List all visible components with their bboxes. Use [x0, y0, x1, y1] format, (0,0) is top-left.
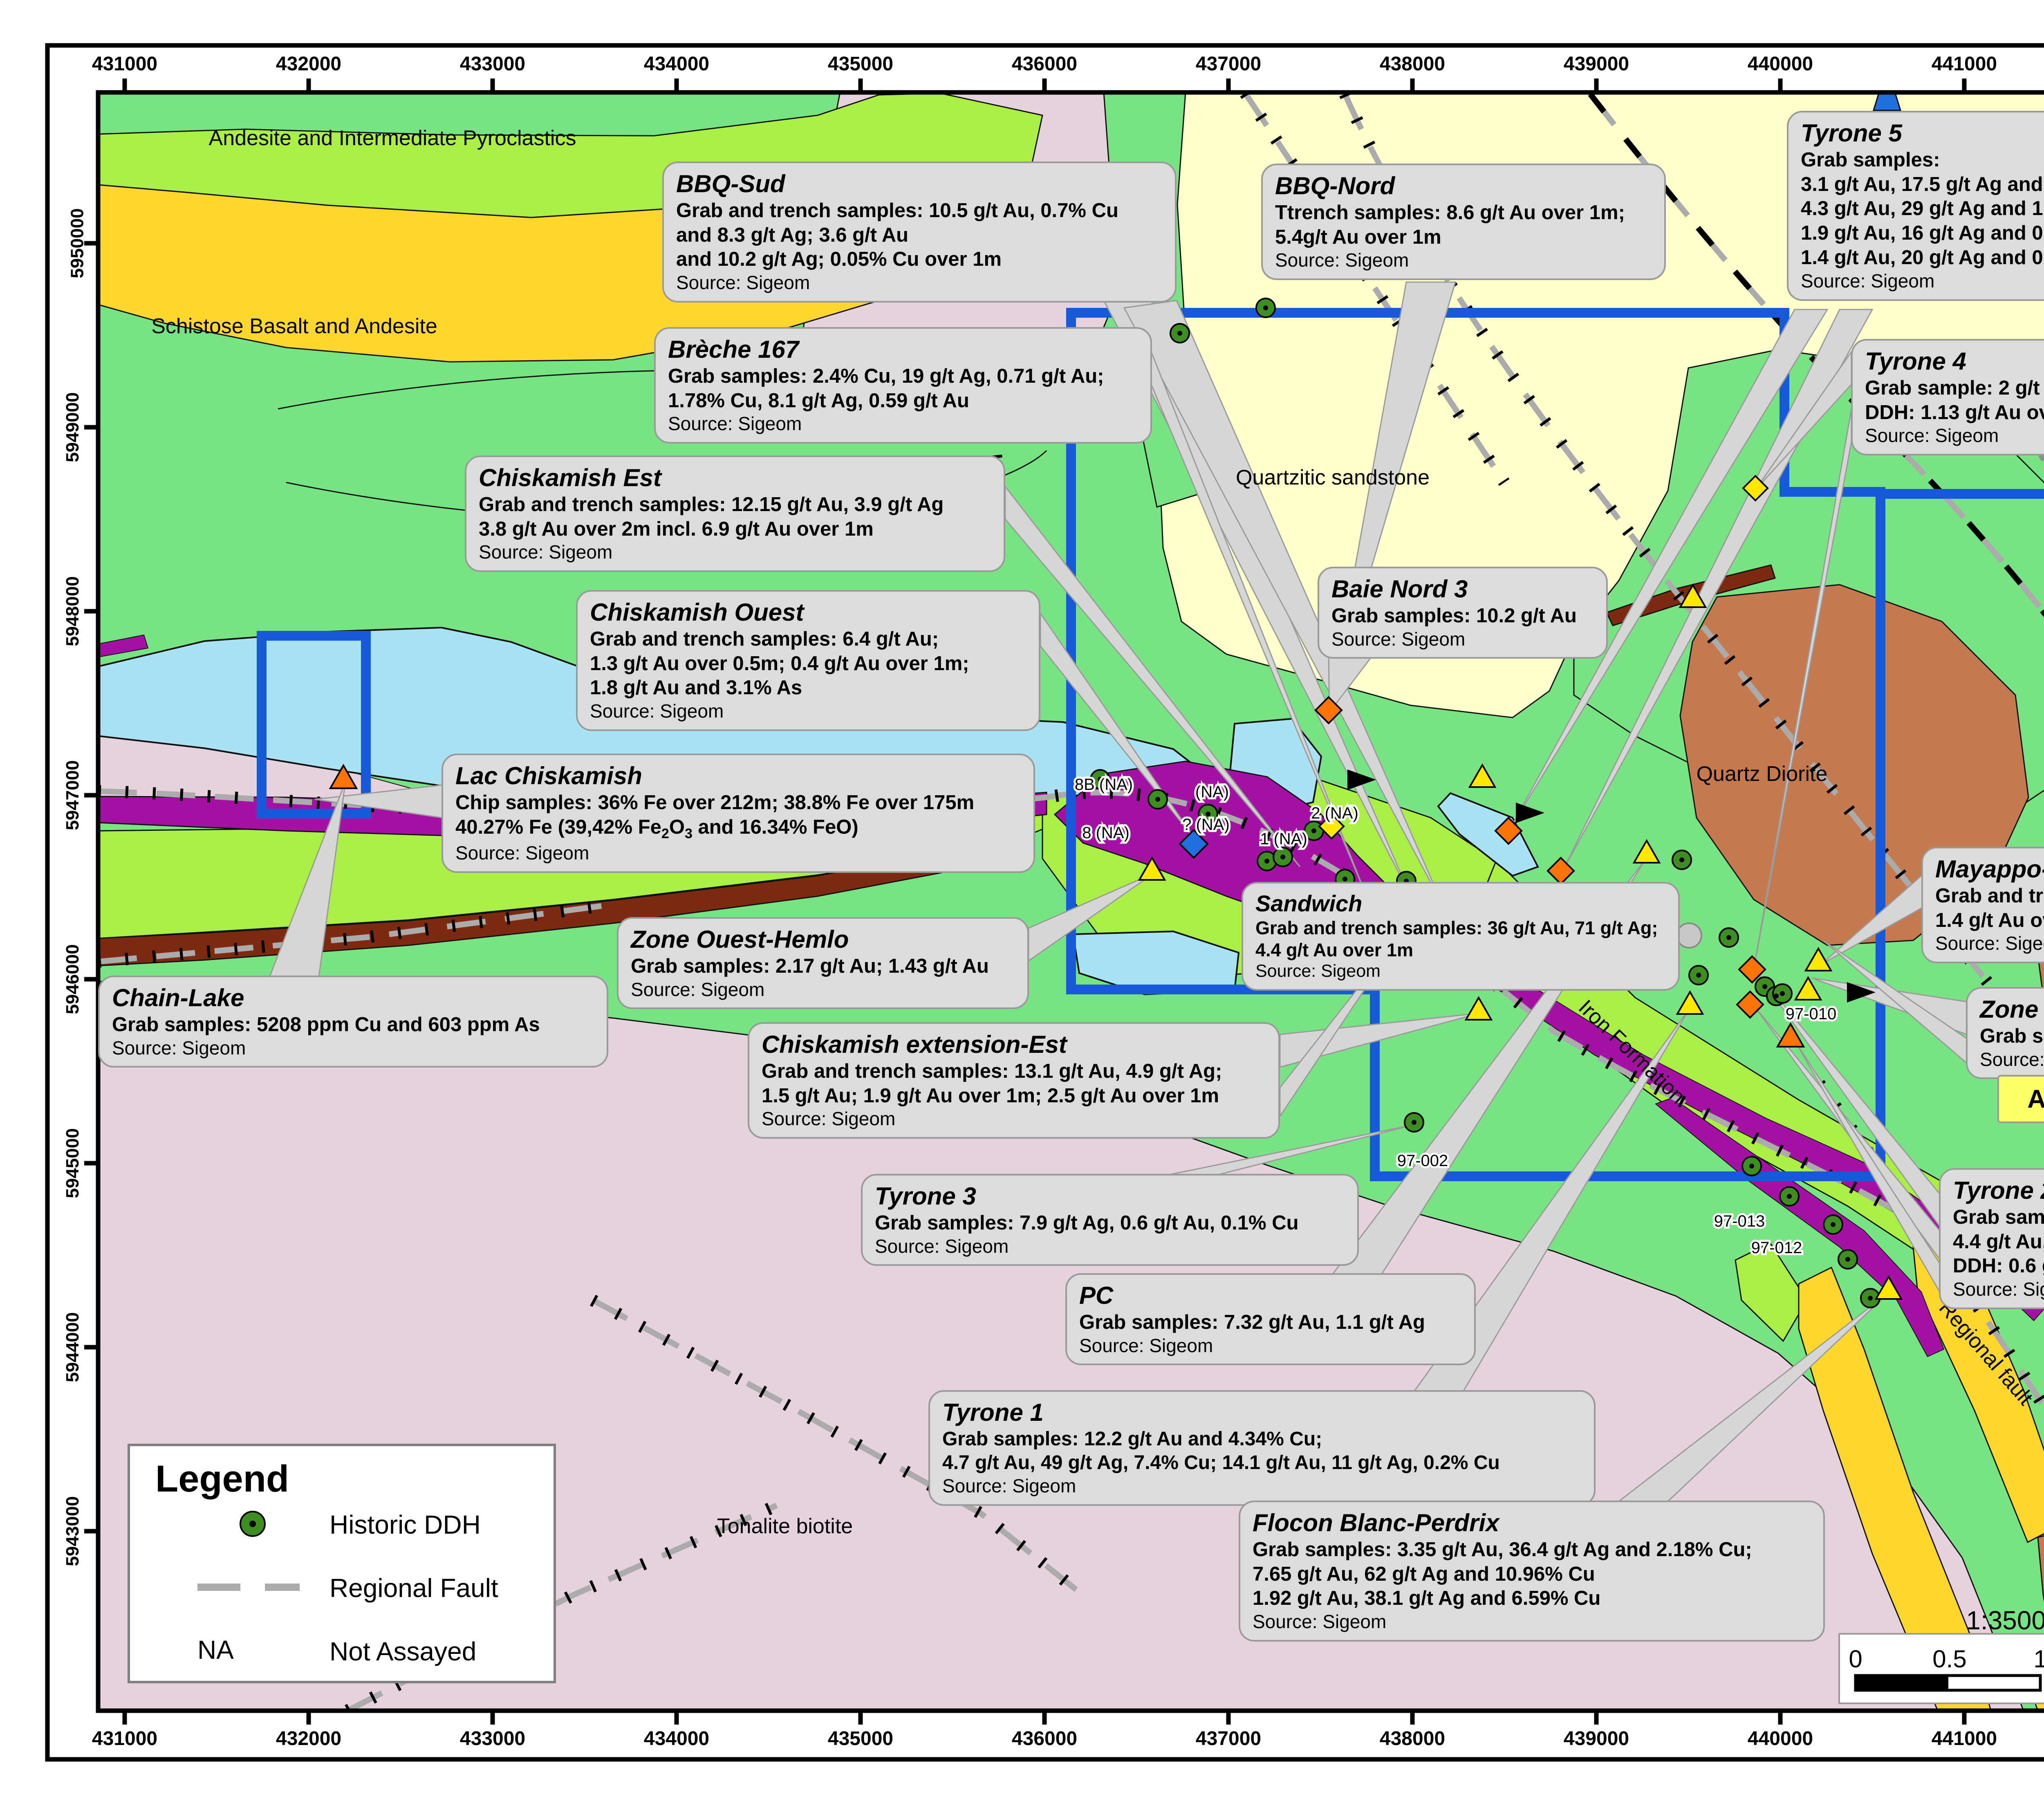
svg-text:434000: 434000	[644, 1728, 709, 1750]
svg-text:NA: NA	[197, 1635, 234, 1664]
svg-text:437000: 437000	[1196, 53, 1261, 75]
svg-text:433000: 433000	[460, 53, 525, 75]
svg-text:5945000: 5945000	[63, 1128, 83, 1198]
svg-text:5947000: 5947000	[63, 760, 83, 830]
svg-text:Tonalite biotite: Tonalite biotite	[717, 1514, 853, 1538]
svg-text:5950000: 5950000	[67, 208, 87, 278]
svg-text:Schistose Basalt and Andesite: Schistose Basalt and Andesite	[151, 314, 437, 338]
svg-text:441000: 441000	[1932, 53, 1997, 75]
svg-text:434000: 434000	[644, 53, 709, 75]
svg-text:5949000: 5949000	[63, 392, 83, 462]
svg-text:440000: 440000	[1748, 1728, 1813, 1750]
svg-text:0: 0	[1849, 1645, 1862, 1673]
svg-text:8B (NA): 8B (NA)	[1075, 776, 1133, 794]
svg-text:432000: 432000	[276, 1728, 341, 1750]
svg-text:? (NA): ? (NA)	[1182, 816, 1230, 834]
svg-text:439000: 439000	[1564, 1728, 1629, 1750]
svg-text:97-012: 97-012	[1751, 1239, 1802, 1257]
svg-text:436000: 436000	[1012, 53, 1077, 75]
svg-text:433000: 433000	[460, 1728, 525, 1750]
svg-text:5946000: 5946000	[63, 944, 83, 1014]
svg-text:97-010: 97-010	[1786, 1005, 1837, 1023]
svg-text:435000: 435000	[828, 53, 893, 75]
svg-text:2 (NA): 2 (NA)	[1311, 804, 1358, 822]
svg-text:437000: 437000	[1196, 1728, 1261, 1750]
svg-text:Quartzitic sandstone: Quartzitic sandstone	[1236, 466, 1430, 489]
svg-text:8 (NA): 8 (NA)	[1082, 824, 1130, 842]
svg-text:439000: 439000	[1564, 53, 1629, 75]
svg-text:(NA): (NA)	[1195, 783, 1229, 801]
svg-text:Quartz Diorite: Quartz Diorite	[1697, 762, 1828, 786]
svg-text:97-002: 97-002	[1397, 1152, 1448, 1170]
svg-text:Andesite and Intermediate Pyro: Andesite and Intermediate Pyroclastics	[209, 126, 576, 150]
svg-text:435000: 435000	[828, 1728, 893, 1750]
svg-text:5948000: 5948000	[63, 576, 83, 646]
svg-text:1 (NA): 1 (NA)	[1260, 830, 1307, 848]
svg-text:432000: 432000	[276, 53, 341, 75]
svg-text:438000: 438000	[1380, 1728, 1445, 1750]
svg-text:1: 1	[2033, 1645, 2044, 1673]
svg-text:5944000: 5944000	[63, 1312, 83, 1382]
svg-text:5943000: 5943000	[63, 1496, 83, 1566]
svg-text:431000: 431000	[92, 53, 157, 75]
svg-text:436000: 436000	[1012, 1728, 1077, 1750]
svg-text:440000: 440000	[1748, 53, 1813, 75]
svg-text:431000: 431000	[92, 1728, 157, 1750]
svg-text:441000: 441000	[1932, 1728, 1997, 1750]
svg-text:97-013: 97-013	[1714, 1212, 1765, 1230]
svg-text:1:35000: 1:35000	[1966, 1606, 2044, 1635]
svg-text:438000: 438000	[1380, 53, 1445, 75]
svg-text:0.5: 0.5	[1932, 1645, 1966, 1673]
